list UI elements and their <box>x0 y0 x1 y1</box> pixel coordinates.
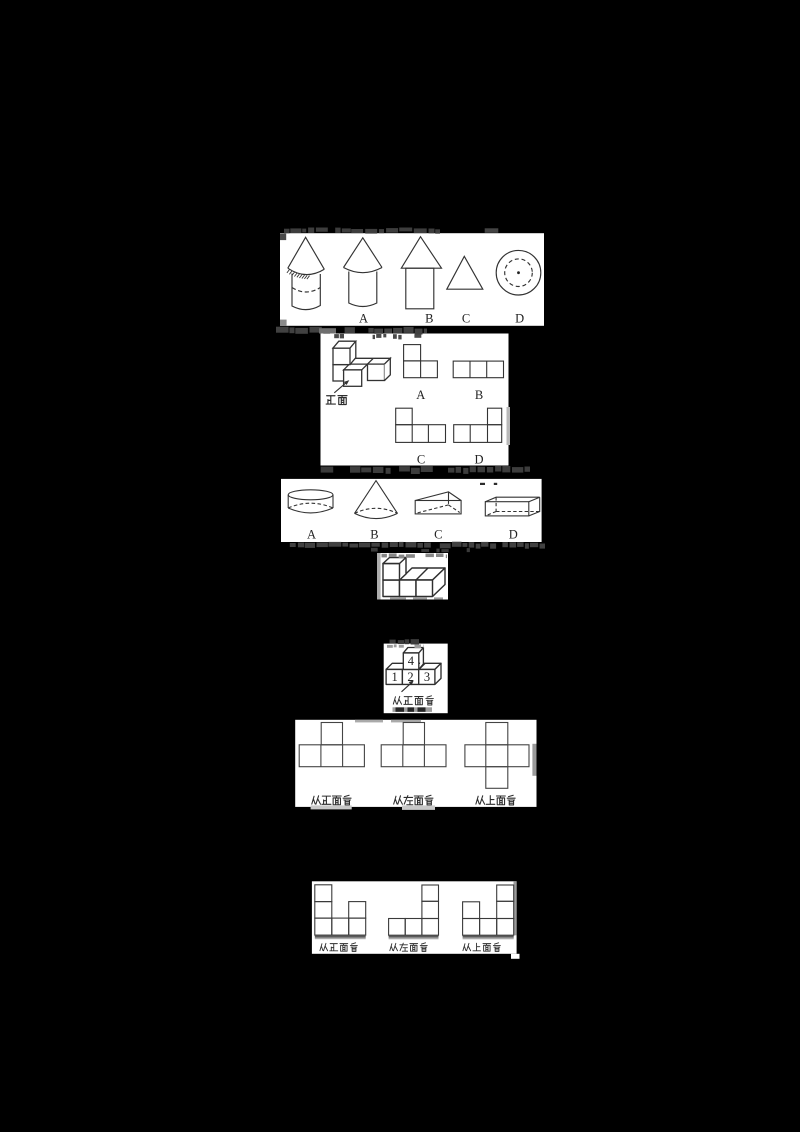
svg-text:C: C <box>434 528 442 542</box>
svg-text:B: B <box>370 528 378 542</box>
svg-text:4: 4 <box>408 654 415 668</box>
svg-text:D: D <box>474 453 483 467</box>
svg-text:D: D <box>515 312 524 326</box>
svg-text:D: D <box>509 528 518 542</box>
svg-text:1: 1 <box>391 670 397 684</box>
svg-text:A: A <box>307 528 316 542</box>
svg-text:A: A <box>359 312 368 326</box>
svg-text:C: C <box>417 453 425 467</box>
svg-text:A: A <box>416 388 425 402</box>
svg-text:B: B <box>425 312 433 326</box>
svg-text:C: C <box>462 312 470 326</box>
svg-text:3: 3 <box>424 670 430 684</box>
svg-text:B: B <box>475 388 483 402</box>
